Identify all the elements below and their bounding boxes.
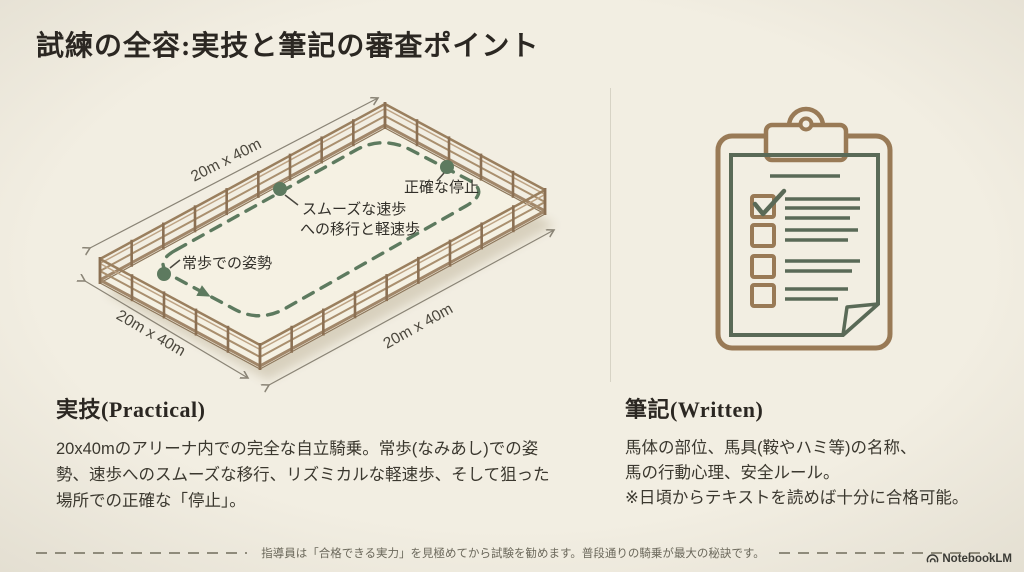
checkpoint-label-stop: 正確な停止 (404, 179, 479, 196)
footer: 指導員は「合格できる実力」を見極めてから試験を勧めます。普段通りの騎乗が最大の秘… (36, 546, 990, 560)
checkpoint-dot-walk (157, 267, 171, 281)
practical-heading: 実技(Practical) (56, 392, 205, 424)
practical-body: 20x40mのアリーナ内での完全な自立騎乗。常歩(なみあし)での姿勢、速歩へのス… (56, 436, 564, 514)
written-body-line1: 馬体の部位、馬具(鞍やハミ等)の名称、 (625, 436, 985, 461)
notebooklm-logo-icon (926, 552, 939, 565)
clipboard-clip-hole (801, 119, 812, 130)
checkpoint-dot-trot (273, 182, 287, 196)
checkpoint-label-trot-line2: への移行と軽速歩 (300, 221, 420, 238)
checkbox-3 (752, 256, 774, 277)
written-body-line3: ※日頃からテキストを読めば十分に合格可能。 (625, 486, 985, 511)
checkpoint-label-trot-line1: スムーズな速歩 (302, 201, 406, 218)
written-body-line2: 馬の行動心理、安全ルール。 (625, 461, 985, 486)
checkbox-2 (752, 225, 774, 246)
notebooklm-brand: NotebookLM (926, 552, 1012, 565)
dim-label-top: 20m x 40m (188, 135, 264, 185)
footer-dashes-left (36, 552, 247, 554)
written-test-illustration (700, 103, 900, 361)
written-heading: 筆記(Written) (625, 392, 763, 424)
written-body: 馬体の部位、馬具(鞍やハミ等)の名称、 馬の行動心理、安全ルール。 ※日頃からテ… (625, 436, 985, 511)
notebooklm-brand-label: NotebookLM (942, 553, 1012, 565)
vertical-divider (610, 88, 611, 382)
arena-diagram: 正確な停止 スムーズな速歩 への移行と軽速歩 常歩での姿勢 20m x 40m … (60, 88, 580, 400)
paper-text-lines (785, 199, 860, 299)
page-title: 試練の全容:実技と筆記の審査ポイント (36, 24, 539, 64)
checkbox-4 (752, 285, 774, 306)
paper-fold-icon (843, 304, 878, 335)
arena-svg: 正確な停止 スムーズな速歩 への移行と軽速歩 常歩での姿勢 20m x 40m … (60, 88, 580, 400)
footer-note: 指導員は「合格できる実力」を見極めてから試験を勧めます。普段通りの騎乗が最大の秘… (261, 545, 764, 561)
checkpoint-dot-stop (440, 160, 454, 174)
clipboard-icon (700, 103, 900, 361)
checkpoint-label-walk: 常歩での姿勢 (182, 255, 272, 272)
